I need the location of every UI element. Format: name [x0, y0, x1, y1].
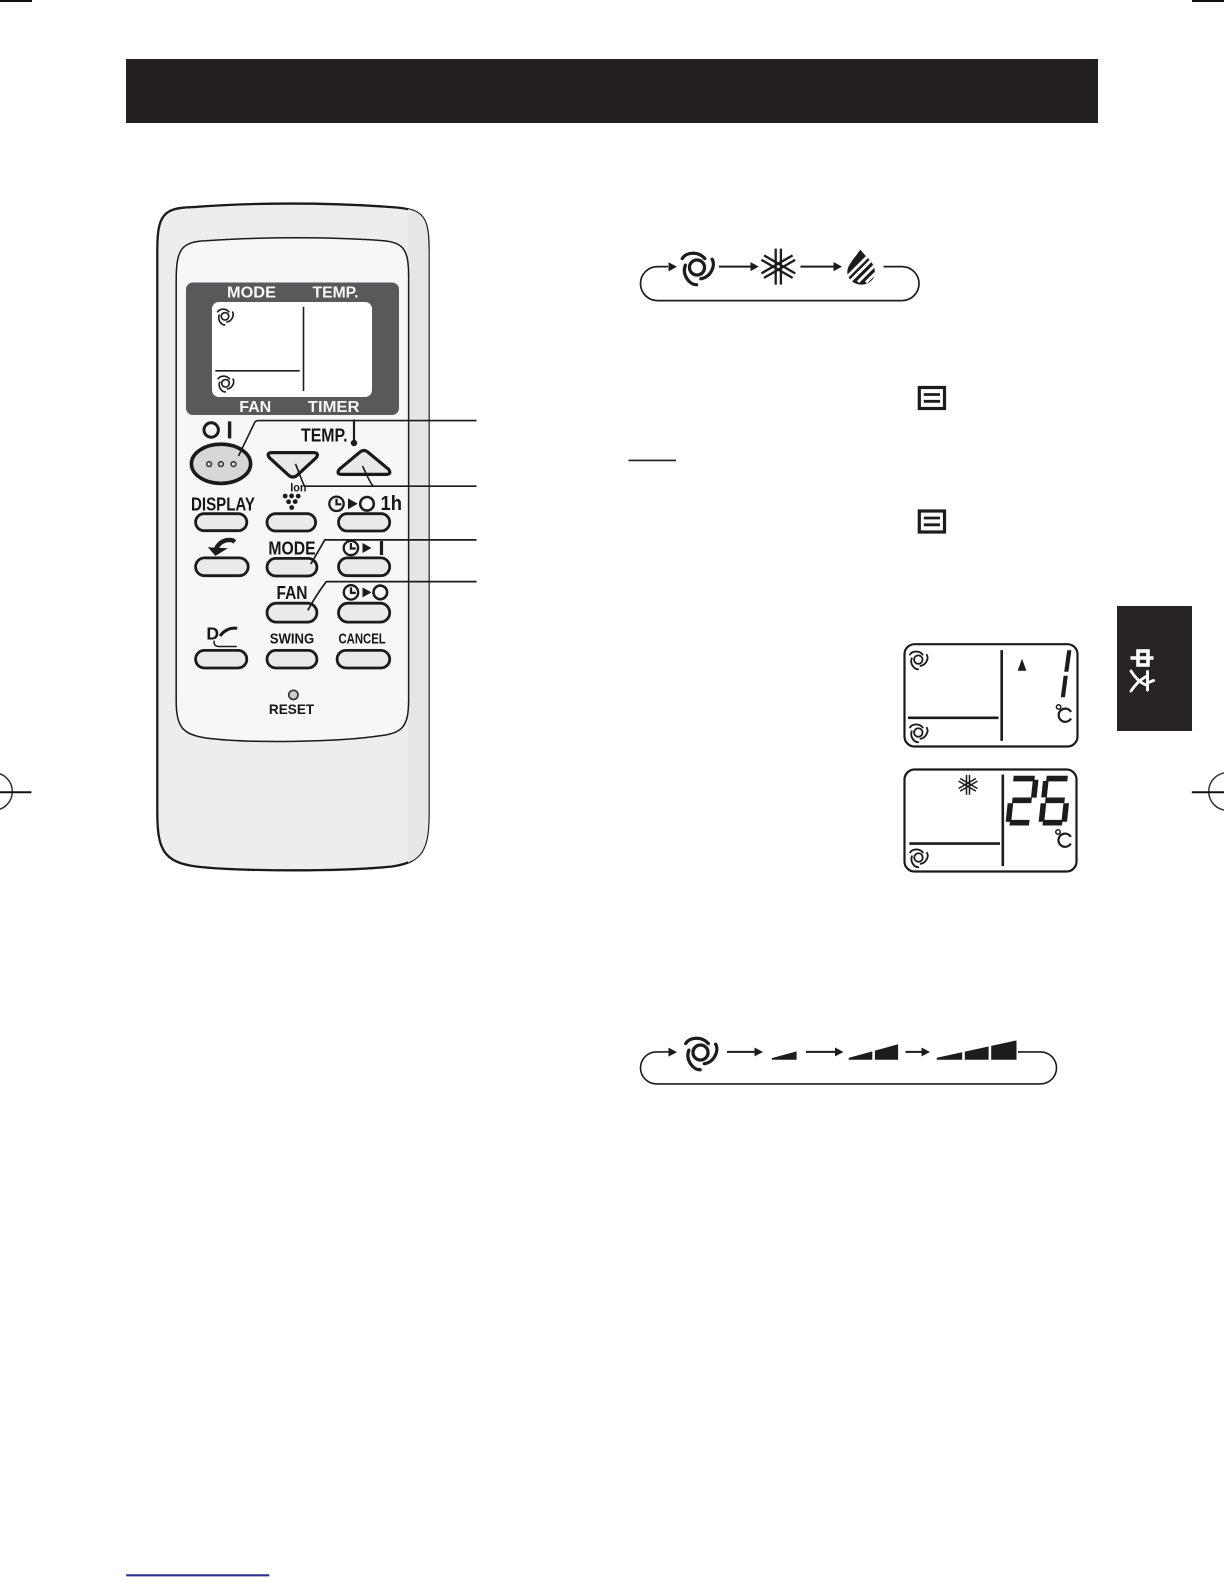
- svg-text:CANCEL: CANCEL: [339, 631, 386, 648]
- svg-text:D: D: [206, 624, 219, 644]
- svg-text:FAN: FAN: [277, 583, 308, 603]
- svg-text:SWING: SWING: [270, 631, 315, 648]
- svg-text:1h: 1h: [381, 493, 403, 515]
- svg-text:MODE: MODE: [227, 285, 276, 302]
- svg-text:MODE: MODE: [268, 539, 315, 559]
- svg-text:DISPLAY: DISPLAY: [191, 494, 255, 514]
- svg-text:FAN: FAN: [239, 399, 271, 416]
- svg-text:TEMP.: TEMP.: [301, 424, 348, 445]
- svg-text:TEMP.: TEMP.: [313, 285, 359, 302]
- svg-text:RESET: RESET: [269, 701, 315, 717]
- svg-text:TIMER: TIMER: [308, 399, 360, 416]
- svg-text:Ion: Ion: [290, 483, 306, 495]
